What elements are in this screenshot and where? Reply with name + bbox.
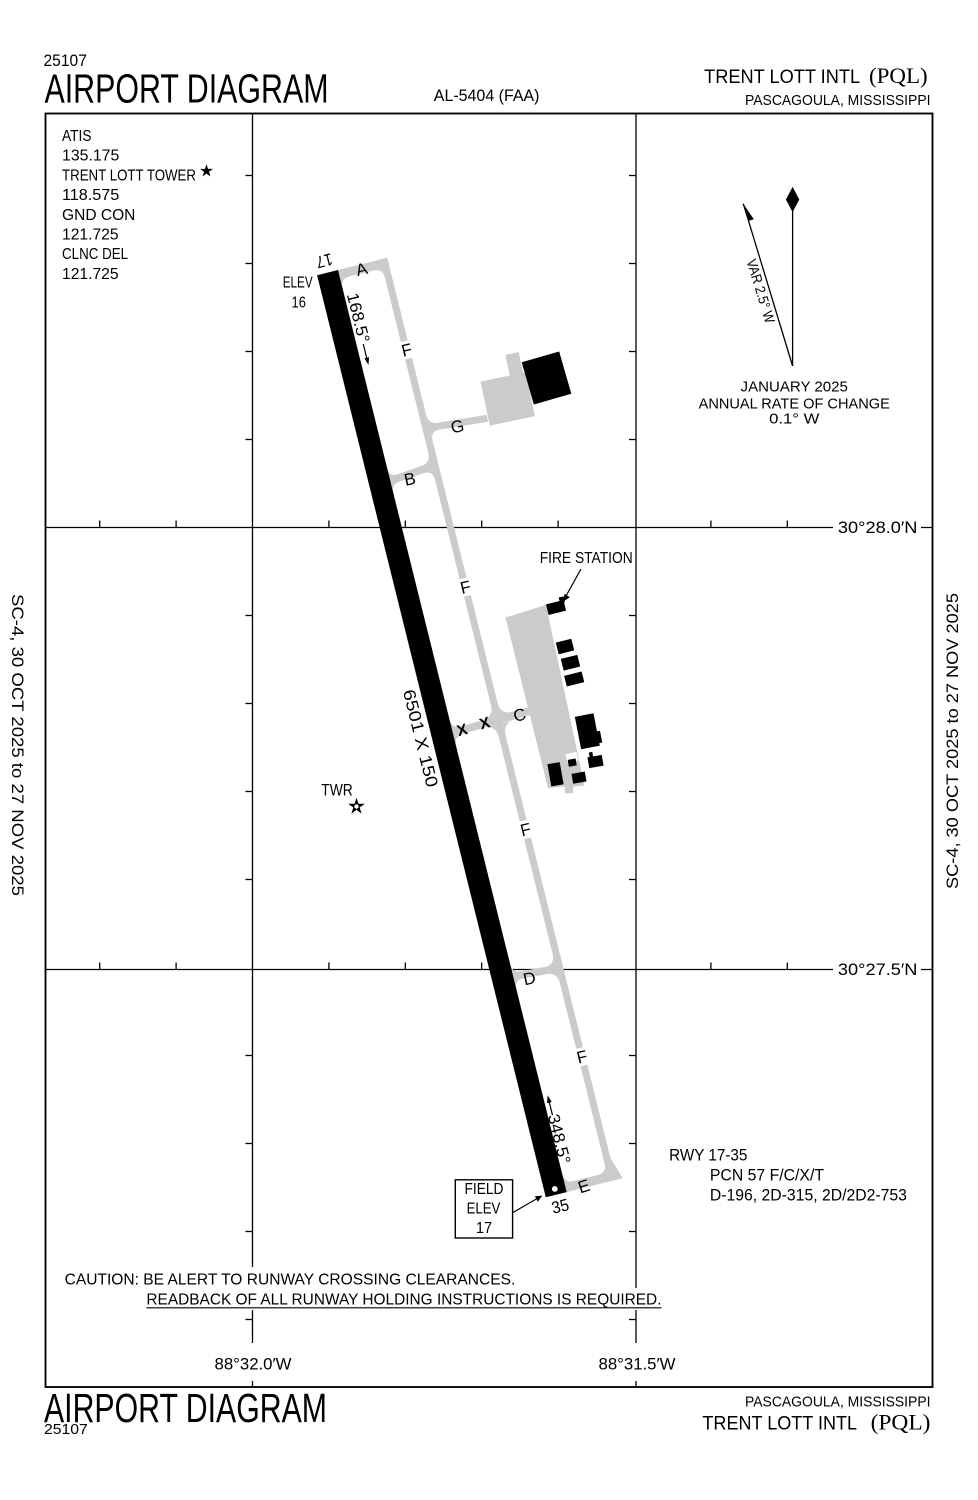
svg-text:TRENT LOTT TOWER: TRENT LOTT TOWER bbox=[62, 167, 196, 184]
svg-text:READBACK OF ALL RUNWAY HOLDING: READBACK OF ALL RUNWAY HOLDING INSTRUCTI… bbox=[146, 1291, 661, 1308]
svg-text:PCN 57 F/C/X/T: PCN 57 F/C/X/T bbox=[710, 1166, 824, 1185]
svg-text:SC-4, 30 OCT 2025 to 27 NOV: SC-4, 30 OCT 2025 to 27 NOV 2025 bbox=[8, 594, 27, 896]
svg-text:AIRPORT DIAGRAM: AIRPORT DIAGRAM bbox=[45, 65, 329, 111]
svg-text:25107: 25107 bbox=[44, 1422, 88, 1438]
svg-text:0.1° W: 0.1° W bbox=[769, 411, 819, 427]
svg-text:135.175: 135.175 bbox=[62, 148, 119, 165]
svg-text:(PQL): (PQL) bbox=[871, 1410, 931, 1435]
svg-text:PASCAGOULA, MISSISSIPPI: PASCAGOULA, MISSISSIPPI bbox=[745, 1394, 931, 1410]
svg-text:17: 17 bbox=[476, 1220, 492, 1237]
svg-text:CAUTION: BE ALERT TO RUNWAY CR: CAUTION: BE ALERT TO RUNWAY CROSSING CLE… bbox=[65, 1272, 516, 1289]
svg-text:TRENT LOTT INTL: TRENT LOTT INTL bbox=[704, 66, 860, 88]
svg-text:CLNC DEL: CLNC DEL bbox=[62, 246, 128, 263]
svg-text:88°31.5′W: 88°31.5′W bbox=[599, 1355, 676, 1374]
svg-text:FIRE STATION: FIRE STATION bbox=[540, 550, 633, 567]
svg-text:AL-5404 (FAA): AL-5404 (FAA) bbox=[434, 87, 540, 105]
svg-text:121.725: 121.725 bbox=[62, 227, 119, 244]
svg-text:ANNUAL RATE OF CHANGE: ANNUAL RATE OF CHANGE bbox=[699, 396, 890, 412]
svg-text:88°32.0′W: 88°32.0′W bbox=[215, 1355, 292, 1374]
svg-text:ATIS: ATIS bbox=[62, 128, 92, 145]
svg-text:ELEV: ELEV bbox=[283, 275, 313, 292]
svg-text:16: 16 bbox=[292, 294, 306, 311]
svg-text:FIELD: FIELD bbox=[465, 1181, 504, 1198]
svg-text:121.725: 121.725 bbox=[62, 266, 119, 283]
svg-text:D-196, 2D-315, 2D/2D2-753: D-196, 2D-315, 2D/2D2-753 bbox=[710, 1186, 907, 1205]
svg-text:SC-4, 30 OCT 2025 to 27 NOV: SC-4, 30 OCT 2025 to 27 NOV 2025 bbox=[943, 593, 962, 889]
svg-text:TWR: TWR bbox=[321, 781, 353, 800]
svg-text:(PQL): (PQL) bbox=[869, 63, 928, 88]
svg-text:30°27.5′N: 30°27.5′N bbox=[838, 960, 918, 979]
svg-text:RWY 17-35: RWY 17-35 bbox=[669, 1146, 747, 1165]
svg-text:TRENT LOTT INTL: TRENT LOTT INTL bbox=[702, 1413, 857, 1435]
svg-text:JANUARY 2025: JANUARY 2025 bbox=[741, 380, 848, 396]
svg-text:PASCAGOULA, MISSISSIPPI: PASCAGOULA, MISSISSIPPI bbox=[745, 93, 931, 109]
svg-text:118.575: 118.575 bbox=[62, 187, 119, 204]
svg-text:GND CON: GND CON bbox=[62, 207, 135, 224]
svg-text:30°28.0′N: 30°28.0′N bbox=[838, 518, 918, 537]
svg-text:ELEV: ELEV bbox=[467, 1201, 501, 1218]
